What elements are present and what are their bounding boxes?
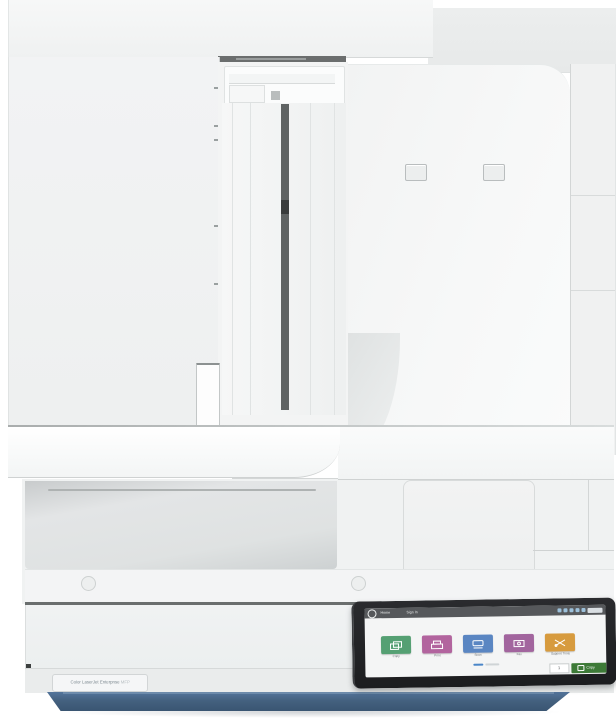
lid-hinge-cap <box>405 164 427 181</box>
home-tiles-row: CopyPrintScanFaxSupport Tools <box>381 633 575 661</box>
product-photo-hp-mfp: Color LaserJet Enterprise MFP Home Sign … <box>0 0 616 721</box>
tile-button[interactable] <box>545 633 575 651</box>
guide-tab <box>229 85 265 103</box>
start-copy-button[interactable]: Copy <box>571 663 606 674</box>
touchscreen[interactable]: Home Sign In CopyPrintScanFaxSupport Too… <box>364 605 606 678</box>
fax-icon <box>512 638 526 647</box>
tray-ridge <box>310 103 311 415</box>
home-tile-print[interactable]: Print <box>422 635 452 660</box>
slot-glint <box>236 58 306 60</box>
info-icon[interactable] <box>569 608 573 612</box>
status-icon-group[interactable] <box>557 607 602 613</box>
screen-top-bar: Home Sign In <box>364 605 605 619</box>
guide-slot <box>271 91 280 100</box>
model-name-plate: Color LaserJet Enterprise MFP <box>52 674 148 692</box>
tile-button[interactable] <box>504 634 534 652</box>
start-copy-label: Copy <box>586 666 594 670</box>
output-bin-recess <box>25 481 337 569</box>
adf-tray-surface <box>222 103 346 415</box>
copy-count-value: 1 <box>558 666 560 670</box>
tile-button[interactable] <box>422 635 452 653</box>
base-trim-bar <box>47 692 570 711</box>
adf-document-tray <box>218 62 348 426</box>
network-icon[interactable] <box>575 608 579 612</box>
home-tile-scan[interactable]: Scan <box>463 634 493 659</box>
panel-seam <box>571 290 615 291</box>
panel-seam <box>571 195 615 196</box>
sign-in-button[interactable]: Sign In <box>406 611 417 615</box>
side-seam-horizontal <box>533 550 614 551</box>
screw-indent <box>81 576 96 591</box>
page-dot-active[interactable] <box>473 664 483 666</box>
copy-count-field[interactable]: 1 <box>549 663 569 673</box>
scan-icon <box>471 639 485 648</box>
screw-indent <box>351 576 366 591</box>
tile-label: Fax <box>517 653 522 656</box>
copy-glyph-icon <box>577 665 584 671</box>
output-slot-line <box>48 489 316 491</box>
right-side-panel <box>570 64 616 455</box>
tile-button[interactable] <box>463 634 493 652</box>
printer-lower-body <box>22 479 614 604</box>
tile-label: Support Tools <box>551 652 570 655</box>
clock-display <box>587 607 602 612</box>
home-tab[interactable]: Home <box>380 611 390 615</box>
home-tile-copy[interactable]: Copy <box>381 636 411 661</box>
left-side-panel <box>8 57 220 427</box>
clock-icon[interactable] <box>581 608 585 612</box>
scanner-deck-front <box>8 427 340 478</box>
adf-feed-slot <box>281 104 289 410</box>
feed-roller <box>281 200 289 214</box>
tray-ridge <box>334 103 335 415</box>
home-tile-fax[interactable]: Fax <box>504 634 534 659</box>
tile-label: Print <box>434 654 440 657</box>
tray-ridge <box>250 103 251 415</box>
copy-icon <box>389 640 403 649</box>
tile-label: Copy <box>393 655 400 658</box>
tray-status-icon[interactable] <box>557 608 561 612</box>
model-name-text: Color LaserJet Enterprise MFP <box>70 681 129 685</box>
side-seam-vertical <box>588 479 589 551</box>
control-panel-bezel: Home Sign In CopyPrintScanFaxSupport Too… <box>351 598 616 689</box>
adf-top-lid <box>8 0 433 58</box>
document-status-icon[interactable] <box>563 608 567 612</box>
tile-button[interactable] <box>381 636 411 654</box>
print-icon <box>430 640 444 649</box>
base-highlight <box>63 692 555 694</box>
guide-rail <box>229 74 335 84</box>
lid-hinge-cap <box>483 164 505 181</box>
home-tile-support-tools[interactable]: Support Tools <box>545 633 575 658</box>
paper-width-guide <box>224 66 345 105</box>
scanner-deck-right <box>338 427 614 480</box>
hp-logo-icon[interactable] <box>367 609 376 618</box>
support-tools-icon <box>553 638 567 647</box>
topbar-spacer <box>429 610 553 612</box>
tray-ridge <box>232 103 233 415</box>
page-dot[interactable] <box>485 663 499 665</box>
tile-label: Scan <box>475 654 482 657</box>
quick-copy-row: 1 Copy <box>549 663 606 674</box>
